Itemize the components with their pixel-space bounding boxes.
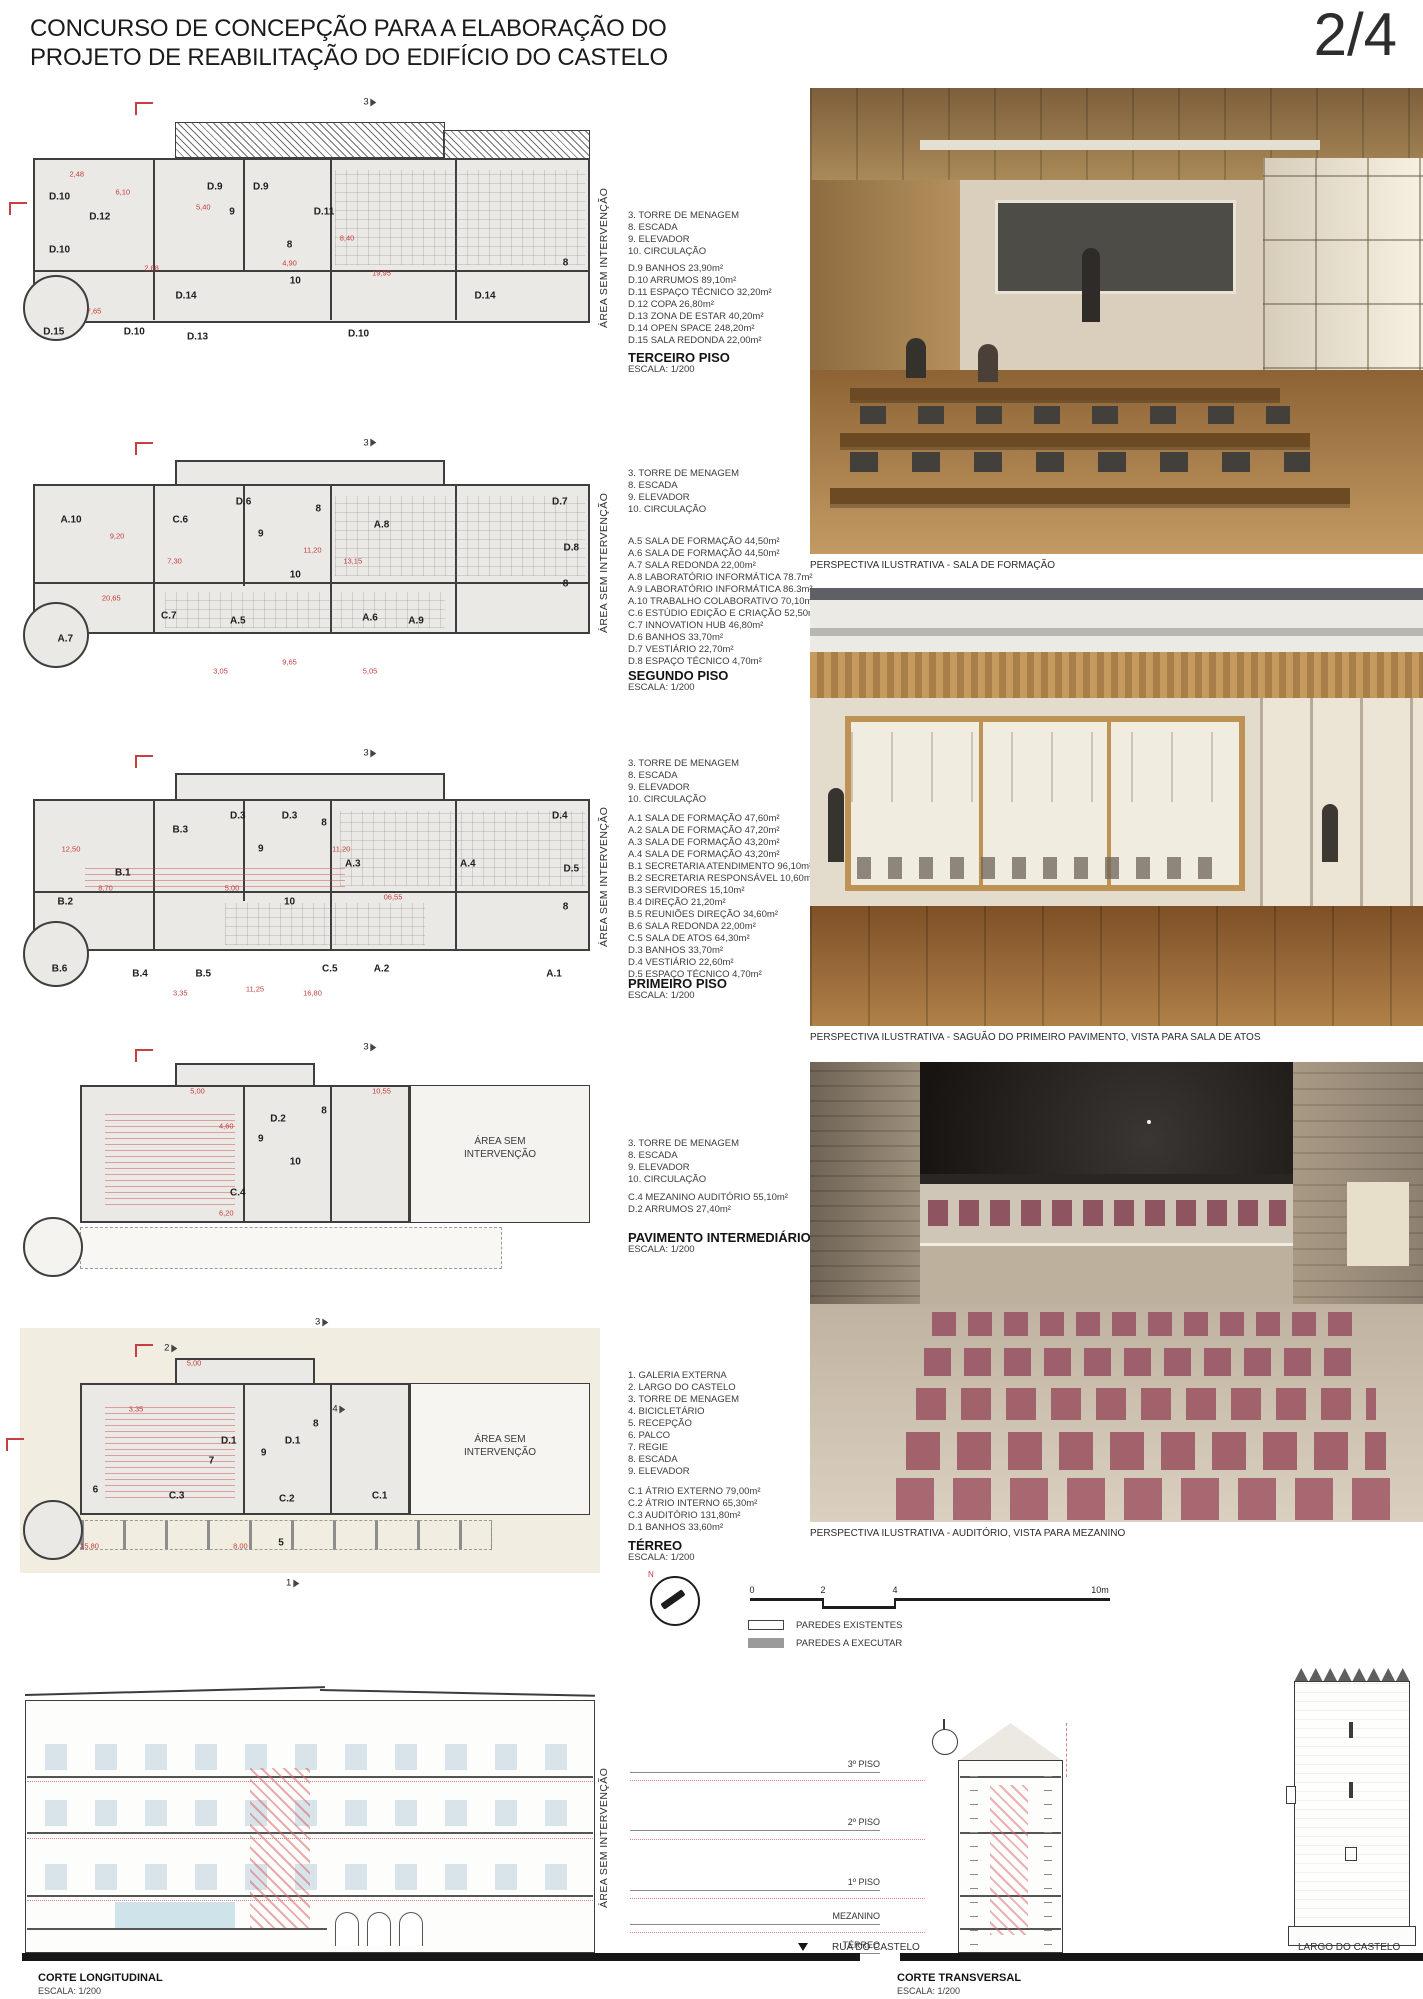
room-code-label: D.14 xyxy=(175,291,196,302)
room-code-label: C.2 xyxy=(279,1494,295,1505)
level-label: 3º PISO xyxy=(630,1759,880,1769)
room-code-label: 3 xyxy=(363,437,376,448)
room-code-label: 20,65 xyxy=(102,593,121,602)
area-sem-intervencao-label: ÁREA SEM INTERVENÇÃO xyxy=(598,772,610,982)
room-code-label: C.3 xyxy=(169,1491,185,1502)
plan-title: SEGUNDO PISO xyxy=(628,668,728,683)
window-band xyxy=(45,1864,575,1890)
legend-line: A.4 SALA DE FORMAÇÃO 43,20m² xyxy=(628,849,813,861)
room-code-label: 6 xyxy=(93,1485,99,1496)
legend-line: D.1 BANHOS 33,60m² xyxy=(628,1522,813,1534)
section-outline xyxy=(25,1700,595,1953)
standing-figure xyxy=(1322,804,1338,862)
floor-slab xyxy=(27,1776,593,1778)
legend-line: D.15 SALA REDONDA 22,00m² xyxy=(628,335,813,347)
legend-line: 10. CIRCULAÇÃO xyxy=(628,246,813,258)
legend-line: A.2 SALA DE FORMAÇÃO 47,20m² xyxy=(628,825,813,837)
legend-line: D.4 VESTIÁRIO 22,60m² xyxy=(628,957,813,969)
bright-window xyxy=(1347,1182,1409,1266)
chair-row xyxy=(906,1432,1386,1470)
room-code-label: 4,90 xyxy=(282,259,297,268)
room-code-label: 1 xyxy=(286,1578,299,1589)
legend-line: C.3 AUDITÓRIO 131,80m² xyxy=(628,1510,813,1522)
room-code-label: 8 xyxy=(563,258,569,269)
plan-terceiro-piso: 3D.12D.10D.10D.9D.99D.11810D.14D.148D.10… xyxy=(25,110,600,365)
crenellations xyxy=(1294,1668,1410,1682)
level-line-red xyxy=(27,1900,593,1901)
dome xyxy=(932,1729,958,1755)
legend-line: 9. ELEVADOR xyxy=(628,1162,813,1174)
legend-line: A.10 TRABALHO COLABORATIVO 70,10m² xyxy=(628,596,813,608)
arch xyxy=(335,1912,359,1946)
room-code-label: 5,40 xyxy=(196,202,211,211)
scale-tick xyxy=(822,1598,824,1609)
level-line-red xyxy=(27,1781,593,1782)
room-code-label: 8,70 xyxy=(98,883,113,892)
corte-longitudinal-drawing xyxy=(25,1688,610,1958)
legend-line: 9. ELEVADOR xyxy=(628,234,813,246)
scale-num: 4 xyxy=(892,1585,897,1595)
right-glass-wall xyxy=(1260,698,1423,906)
plan-rooms-legend: D.9 BANHOS 23,90m²D.10 ARRUMOS 89,10m²D.… xyxy=(628,263,813,347)
stone-courses xyxy=(1295,1682,1409,1927)
scale-tick xyxy=(894,1598,896,1609)
room-code-label: 3 xyxy=(315,1317,328,1328)
plan-rooms-legend: A.1 SALA DE FORMAÇÃO 47,60m²A.2 SALA DE … xyxy=(628,813,813,981)
room-code-label: D.9 xyxy=(253,181,269,192)
legend-line: A.8 LABORATÓRIO INFORMÁTICA 78.7m² xyxy=(628,572,813,584)
tower-window xyxy=(1345,1847,1357,1861)
room-code-label: A.7 xyxy=(57,633,73,644)
board-title-line1: CONCURSO DE CONCEPÇÃO PARA A ELABORAÇÃO … xyxy=(30,14,668,43)
legend-line: 2. LARGO DO CASTELO xyxy=(628,1382,813,1394)
plan-key-legend: 1. GALERIA EXTERNA2. LARGO DO CASTELO3. … xyxy=(628,1370,813,1478)
room-code-label: 19,95 xyxy=(372,269,391,278)
level-line xyxy=(630,1772,880,1773)
room-code-label: 11,20 xyxy=(332,845,350,854)
scale-seg xyxy=(822,1606,894,1609)
north-needle xyxy=(660,1589,685,1610)
room-code-label: D.10 xyxy=(348,329,369,340)
legend-line: B.3 SERVIDORES 15,10m² xyxy=(628,885,813,897)
room-code-label: D.15 xyxy=(43,326,64,337)
level-line-red xyxy=(630,1780,925,1781)
room-code-label: 4,60 xyxy=(219,1122,234,1131)
roof-gable xyxy=(958,1723,1063,1761)
floor-slab xyxy=(27,1895,593,1897)
room-code-label: C.4 xyxy=(230,1187,246,1198)
room-code-label: 5 xyxy=(278,1537,284,1548)
existing-walls-swatch xyxy=(748,1620,784,1630)
room-code-label: 7,65 xyxy=(87,307,102,316)
room-code-label: 2 xyxy=(164,1343,177,1354)
room-code-label: 3 xyxy=(363,748,376,759)
room-code-label: 06,55 xyxy=(384,893,403,902)
ceiling-light xyxy=(1147,1120,1151,1124)
room-code-label: 8 xyxy=(563,579,569,590)
legend-line: D.2 ARRUMOS 27,40m² xyxy=(628,1204,813,1216)
scale-num: 2 xyxy=(820,1585,825,1595)
room-code-label: D.13 xyxy=(187,331,208,342)
seated-figure xyxy=(978,344,998,382)
plan-room-labels: 3A.10C.6D.698A.8D.7D.810A.7C.7A.5A.6A.98… xyxy=(25,452,600,680)
room-code-label: D.9 xyxy=(207,181,223,192)
floor-planks xyxy=(810,906,1423,1026)
room-code-label: 15,80 xyxy=(80,1541,99,1550)
rear-wall xyxy=(920,1246,1293,1304)
plan-scale: ESCALA: 1/200 xyxy=(628,364,695,375)
room-code-label: 6,10 xyxy=(115,187,130,196)
scale-seg xyxy=(894,1598,1110,1601)
legend-line: 8. ESCADA xyxy=(628,1150,813,1162)
room-code-label: 3,05 xyxy=(213,666,228,675)
room-code-label: 13,15 xyxy=(343,557,362,566)
room-code-label: C.7 xyxy=(161,611,177,622)
room-code-label: 2,68 xyxy=(144,264,159,273)
ceiling-beam xyxy=(810,628,1423,636)
legend-line: 10. CIRCULAÇÃO xyxy=(628,504,813,516)
room-code-label: A.3 xyxy=(345,858,361,869)
arch xyxy=(367,1912,391,1946)
room-code-label: D.3 xyxy=(230,810,246,821)
plan-scale: ESCALA: 1/200 xyxy=(628,1244,695,1255)
room-code-label: 9 xyxy=(261,1447,267,1458)
room-code-label: 5,00 xyxy=(225,883,240,892)
plan-title: TÉRREO xyxy=(628,1538,682,1553)
render-caption: PERSPECTIVA ILUSTRATIVA - SAGUÃO DO PRIM… xyxy=(810,1032,1261,1043)
legend-line: B.2 SECRETARIA RESPONSÁVEL 10,60m² xyxy=(628,873,813,885)
room-code-label: A.9 xyxy=(408,615,424,626)
room-code-label: D.8 xyxy=(563,542,579,553)
legend-line: D.14 OPEN SPACE 248,20m² xyxy=(628,323,813,335)
glass-partition xyxy=(845,716,1245,891)
mezzanine xyxy=(920,1174,1293,1246)
scale-seg xyxy=(750,1598,822,1601)
room-code-label: D.10 xyxy=(49,245,70,256)
level-line-red xyxy=(630,1932,925,1933)
room-code-label: 8,00 xyxy=(233,1541,248,1550)
presenter-figure xyxy=(1082,248,1100,322)
roof-line xyxy=(25,1686,325,1696)
level-line-red xyxy=(630,1839,925,1840)
wood-side-wall xyxy=(810,180,960,395)
legend-line: 3. TORRE DE MENAGEM xyxy=(628,758,813,770)
ceiling xyxy=(810,588,1423,652)
board-title: CONCURSO DE CONCEPÇÃO PARA A ELABORAÇÃO … xyxy=(30,14,668,72)
room-code-label: 7,30 xyxy=(167,557,182,566)
plan-room-labels: 3B.3D.3D.3B.1B.2A.3A.4D.4D.598108B.6B.4B… xyxy=(25,763,600,1003)
level-line xyxy=(630,1924,880,1925)
room-code-label: 8 xyxy=(321,1106,327,1117)
room-code-label: 8,40 xyxy=(340,233,355,242)
plan-key-legend: 3. TORRE DE MENAGEM8. ESCADA9. ELEVADOR1… xyxy=(628,758,813,806)
room-code-label: A.8 xyxy=(374,519,390,530)
north-n-label: N xyxy=(648,1570,654,1579)
level-line xyxy=(630,1830,880,1831)
page-number: 2/4 xyxy=(1314,0,1397,69)
existing-walls-label: PAREDES EXISTENTES xyxy=(796,1620,902,1631)
legend-line: 8. ESCADA xyxy=(628,222,813,234)
standing-figure xyxy=(828,788,844,862)
level-label: 2º PISO xyxy=(630,1817,880,1827)
red-stair-core xyxy=(250,1768,310,1928)
room-code-label: C.5 xyxy=(322,964,338,975)
room-code-label: C.6 xyxy=(172,515,188,526)
room-code-label: D.2 xyxy=(270,1113,286,1124)
area-sem-intervencao-label: ÁREA SEM INTERVENÇÃO xyxy=(598,150,610,365)
legend-line: 4. BICICLETÁRIO xyxy=(628,1406,813,1418)
area-sem-intervencao-label: ÁREA SEM INTERVENÇÃO xyxy=(598,1735,610,1940)
room-code-label: B.2 xyxy=(57,897,73,908)
room-code-label: 8 xyxy=(315,504,321,515)
wood-slat-band xyxy=(810,652,1423,698)
plan-title: TERCEIRO PISO xyxy=(628,350,730,365)
legend-line: 3. TORRE DE MENAGEM xyxy=(628,210,813,222)
street-label-rua: RUA DO CASTELO xyxy=(832,1942,920,1953)
room-code-label: 9 xyxy=(258,1134,264,1145)
room-code-label: 8 xyxy=(313,1418,319,1429)
presentation-board: CONCURSO DE CONCEPÇÃO PARA A ELABORAÇÃO … xyxy=(0,0,1423,1999)
window-slits xyxy=(1044,1765,1052,1945)
arrow-slit xyxy=(1349,1782,1353,1798)
room-code-label: D.1 xyxy=(285,1436,301,1447)
plan-room-labels: 3D.12D.10D.10D.9D.99D.11810D.14D.148D.10… xyxy=(25,110,600,365)
roof-line xyxy=(320,1689,595,1697)
legend-line: 10. CIRCULAÇÃO xyxy=(628,794,813,806)
red-stair-core xyxy=(990,1785,1028,1935)
room-code-label: D.5 xyxy=(563,863,579,874)
chalkboard xyxy=(995,200,1236,294)
plan-terreo: ÁREA SEM INTERVENÇÃO 32D.1D.198746C.3C.2… xyxy=(20,1328,600,1618)
plan-scale: ESCALA: 1/200 xyxy=(628,1552,695,1563)
plan-rooms-legend: C.4 MEZANINO AUDITÓRIO 55,10m²D.2 ARRUMO… xyxy=(628,1192,813,1216)
render-caption: PERSPECTIVA ILUSTRATIVA - AUDITÓRIO, VIS… xyxy=(810,1528,1125,1539)
room-code-label: 8 xyxy=(321,818,327,829)
legend-line: 3. TORRE DE MENAGEM xyxy=(628,468,813,480)
plan-primeiro-piso: 3B.3D.3D.3B.1B.2A.3A.4D.4D.598108B.6B.4B… xyxy=(25,763,600,1003)
tower-balcony xyxy=(1286,1786,1296,1804)
legend-line: D.6 BANHOS 33,70m² xyxy=(628,632,813,644)
room-code-label: D.6 xyxy=(236,497,252,508)
ground-bar xyxy=(22,1953,860,1961)
level-line xyxy=(630,1890,880,1891)
room-code-label: 8 xyxy=(287,240,293,251)
board-title-line2: PROJETO DE REABILITAÇÃO DO EDIFÍCIO DO C… xyxy=(30,43,668,72)
legend-line: 9. ELEVADOR xyxy=(628,782,813,794)
legend-line: C.1 ÁTRIO EXTERNO 79,00m² xyxy=(628,1486,813,1498)
legend-line: 1. GALERIA EXTERNA xyxy=(628,1370,813,1382)
table-row xyxy=(840,433,1310,447)
room-code-label: 5,00 xyxy=(190,1086,205,1095)
legend-line: 9. ELEVADOR xyxy=(628,1466,813,1478)
arch xyxy=(399,1912,423,1946)
room-code-label: 9 xyxy=(258,529,264,540)
legend-line: 10. CIRCULAÇÃO xyxy=(628,1174,813,1186)
legend-line: A.3 SALA DE FORMAÇÃO 43,20m² xyxy=(628,837,813,849)
room-code-label: 3 xyxy=(363,1042,376,1053)
room-code-label: 12,50 xyxy=(62,845,81,854)
street-label-largo: LARGO DO CASTELO xyxy=(1298,1942,1400,1953)
glazed-mezzanine xyxy=(115,1902,235,1928)
legend-line: B.6 SALA REDONDA 22,00m² xyxy=(628,921,813,933)
plan-scale: ESCALA: 1/200 xyxy=(628,682,695,693)
legend-line: C.5 SALA DE ATOS 64,30m² xyxy=(628,933,813,945)
render-caption: PERSPECTIVA ILUSTRATIVA - SALA DE FORMAÇ… xyxy=(810,560,1055,571)
chair-row xyxy=(916,1388,1376,1420)
section-scale-transversal: ESCALA: 1/200 xyxy=(897,1986,960,1996)
room-code-label: 3,35 xyxy=(129,1405,144,1414)
room-code-label: D.10 xyxy=(49,191,70,202)
room-code-label: 8 xyxy=(563,902,569,913)
room-code-label: 5,05 xyxy=(363,666,378,675)
legend-line: A.5 SALA DE FORMAÇÃO 44,50m² xyxy=(628,536,813,548)
room-code-label: 2,48 xyxy=(69,169,84,178)
legend-line: D.13 ZONA DE ESTAR 40,20m² xyxy=(628,311,813,323)
room-code-label: 9,65 xyxy=(282,657,297,666)
plan-rooms-legend: A.5 SALA DE FORMAÇÃO 44,50m²A.6 SALA DE … xyxy=(628,536,813,668)
room-code-label: 9 xyxy=(258,844,264,855)
inner-chairs xyxy=(857,857,1226,879)
floor-slab xyxy=(27,1832,593,1834)
plan-segundo-piso: 3A.10C.6D.698A.8D.7D.810A.7C.7A.5A.6A.98… xyxy=(25,452,600,680)
room-code-label: 11,20 xyxy=(303,546,321,555)
tower-body xyxy=(1294,1681,1410,1928)
plan-key-legend: 3. TORRE DE MENAGEM8. ESCADA9. ELEVADOR1… xyxy=(628,210,813,258)
room-code-label: 10 xyxy=(290,1157,301,1168)
chair-row xyxy=(924,1348,1364,1376)
legend-line: D.10 ARRUMOS 89,10m² xyxy=(628,275,813,287)
plan-key-legend: 3. TORRE DE MENAGEM8. ESCADA9. ELEVADOR1… xyxy=(628,1138,813,1186)
mezzanine-slab xyxy=(27,1928,327,1930)
level-label: 1º PISO xyxy=(630,1877,880,1887)
level-label: MEZANINO xyxy=(630,1911,880,1921)
tower-elevation xyxy=(1288,1668,1416,1953)
room-code-label: A.1 xyxy=(546,969,562,980)
scale-num: 0 xyxy=(749,1585,754,1595)
ground-bar xyxy=(900,1953,1423,1961)
legend-line: 8. ESCADA xyxy=(628,480,813,492)
section-title-longitudinal: CORTE LONGITUDINAL xyxy=(38,1972,163,1984)
arrow-slit xyxy=(1349,1722,1353,1738)
room-code-label: A.4 xyxy=(460,858,476,869)
window-band xyxy=(45,1800,575,1826)
legend-line: C.2 ÁTRIO INTERNO 65,30m² xyxy=(628,1498,813,1510)
room-code-label: 10 xyxy=(284,897,295,908)
room-code-label: 9 xyxy=(229,207,235,218)
render-auditorio xyxy=(810,1062,1423,1522)
legend-line: A.9 LABORATÓRIO INFORMÁTICA 86.3m² xyxy=(628,584,813,596)
legend-line: C.7 INNOVATION HUB 46,80m² xyxy=(628,620,813,632)
plan-rooms-legend: C.1 ÁTRIO EXTERNO 79,00m²C.2 ÁTRIO INTER… xyxy=(628,1486,813,1534)
legend-line: 8. ESCADA xyxy=(628,770,813,782)
room-code-label: 4 xyxy=(332,1404,345,1415)
room-code-label: 7 xyxy=(209,1456,215,1467)
room-code-label: 16,80 xyxy=(303,989,322,998)
wood-floor xyxy=(810,906,1423,1026)
room-code-label: D.10 xyxy=(124,326,145,337)
room-code-label: B.3 xyxy=(172,825,188,836)
legend-line: A.6 SALA DE FORMAÇÃO 44,50m² xyxy=(628,548,813,560)
plan-title: PRIMEIRO PISO xyxy=(628,976,727,991)
dome-finial xyxy=(943,1719,945,1729)
room-code-label: D.1 xyxy=(221,1436,237,1447)
render-sala-formacao xyxy=(810,88,1423,554)
plan-scale: ESCALA: 1/200 xyxy=(628,990,695,1001)
legend-line: 3. TORRE DE MENAGEM xyxy=(628,1138,813,1150)
chair-row xyxy=(932,1312,1352,1336)
room-code-label: B.5 xyxy=(195,969,211,980)
window-band xyxy=(45,1744,575,1770)
room-code-label: C.1 xyxy=(372,1491,388,1502)
legend-line: D.9 BANHOS 23,90m² xyxy=(628,263,813,275)
red-dashed-line xyxy=(1066,1723,1067,1777)
room-code-label: A.2 xyxy=(374,964,390,975)
room-code-label: D.3 xyxy=(282,810,298,821)
steel-beam xyxy=(810,588,1423,600)
room-code-label: B.6 xyxy=(52,964,68,975)
scale-num: 10m xyxy=(1091,1585,1109,1595)
legend-line: B.1 SECRETARIA ATENDIMENTO 96,10m² xyxy=(628,861,813,873)
room-code-label: D.14 xyxy=(474,291,495,302)
legend-line: C.4 MEZANINO AUDITÓRIO 55,10m² xyxy=(628,1192,813,1204)
room-code-label: D.4 xyxy=(552,810,568,821)
mezzanine-soffit xyxy=(920,1174,1293,1184)
room-code-label: 5,00 xyxy=(187,1358,202,1367)
legend-line: 5. RECEPÇÃO xyxy=(628,1418,813,1430)
plan-room-labels: 3D.28910C.410,554,605,006,20 xyxy=(25,1055,600,1310)
plan-pavimento-intermediario: ÁREA SEM INTERVENÇÃO 3D.28910C.410,554,6… xyxy=(25,1055,600,1310)
legend-line: B.5 REUNIÕES DIREÇÃO 34,60m² xyxy=(628,909,813,921)
mezzanine-chairs xyxy=(928,1200,1286,1226)
room-code-label: 10,55 xyxy=(372,1086,391,1095)
legend-line: D.3 BANHOS 33,70m² xyxy=(628,945,813,957)
room-code-label: 11,25 xyxy=(246,984,264,993)
chair-row xyxy=(850,452,1310,472)
ceiling-beam xyxy=(920,140,1320,150)
room-code-label: A.10 xyxy=(60,515,81,526)
legend-line: D.8 ESPAÇO TÉCNICO 4,70m² xyxy=(628,656,813,668)
room-code-label: 3 xyxy=(363,97,376,108)
level-line-red xyxy=(27,1838,593,1839)
level-line-red xyxy=(630,1898,925,1899)
datum-triangle-icon xyxy=(798,1943,808,1951)
seated-figure xyxy=(906,338,926,378)
area-sem-intervencao-label: ÁREA SEM INTERVENÇÃO xyxy=(598,460,610,665)
chair-row xyxy=(896,1478,1396,1520)
legend-line: 9. ELEVADOR xyxy=(628,492,813,504)
room-code-label: D.12 xyxy=(89,212,110,223)
room-code-label: B.1 xyxy=(115,868,131,879)
room-code-label: A.6 xyxy=(362,613,378,624)
legend-line: C.6 ESTÚDIO EDIÇÃO E CRIAÇÃO 52,50m² xyxy=(628,608,813,620)
legend-line: D.12 COPA 26,80m² xyxy=(628,299,813,311)
legend-line: D.11 ESPAÇO TÉCNICO 32,20m² xyxy=(628,287,813,299)
legend-line: 7. REGIE xyxy=(628,1442,813,1454)
section-title-transversal: CORTE TRANSVERSAL xyxy=(897,1972,1021,1984)
legend-line: 6. PALCO xyxy=(628,1430,813,1442)
table-row xyxy=(830,488,1350,504)
corte-transversal-drawing xyxy=(930,1715,1100,1955)
north-arrow-icon: N xyxy=(650,1576,700,1626)
room-code-label: D.11 xyxy=(314,207,335,218)
legend-line: 8. ESCADA xyxy=(628,1454,813,1466)
legend-line: D.7 VESTIÁRIO 22,70m² xyxy=(628,644,813,656)
table-row xyxy=(850,388,1280,400)
plan-room-labels: 32D.1D.198746C.3C.2C.15115,808,005,003,3… xyxy=(20,1328,600,1618)
legend-line: 3. TORRE DE MENAGEM xyxy=(628,1394,813,1406)
legend-line: B.4 DIREÇÃO 21,20m² xyxy=(628,897,813,909)
inner-windows xyxy=(851,732,1239,802)
